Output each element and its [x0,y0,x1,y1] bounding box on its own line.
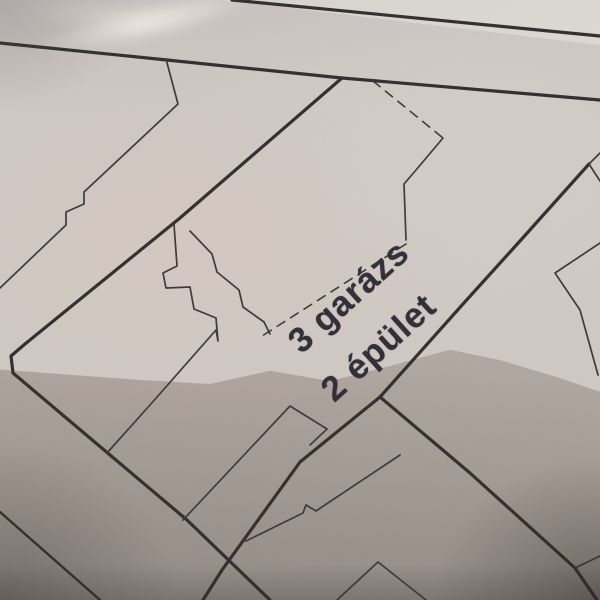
map-line-work [0,0,600,600]
paper-grain-texture [0,0,600,600]
cadastral-map-photo: 3 garázs 2 épület [0,0,600,600]
